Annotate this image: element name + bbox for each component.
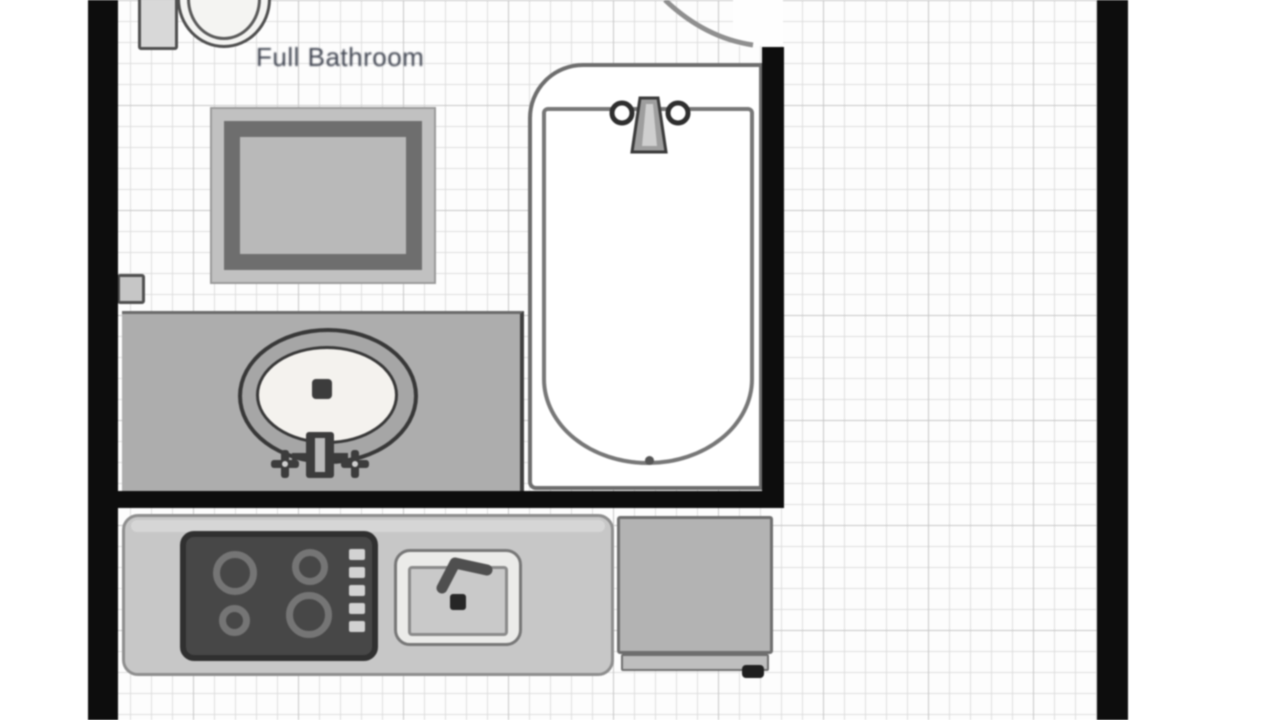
wall-fixture-icon [117,274,145,304]
faucet-left-handle-icon [271,450,299,478]
handle-center [282,461,288,467]
kitchen-sink-drain-icon [450,594,466,610]
vanity-faucet-spout [315,438,325,472]
floor-plan-canvas: Full Bathroom [0,0,1280,720]
appliance-foot [742,665,764,678]
handle-center [352,461,358,467]
kitchen-faucet-icon [425,550,495,600]
vanity-sink-drain-icon [312,379,332,399]
toilet-tank-icon [138,0,178,50]
dishwasher-icon [617,516,773,654]
cooktop-knob-icon [349,603,365,614]
bathtub-basin [542,107,754,465]
mirror-frame [224,121,422,270]
page-margin-right [1128,0,1280,720]
wall-mirror-icon [210,107,436,284]
room-label: Full Bathroom [256,42,424,73]
burner-top-right-icon [292,549,328,585]
burner-bottom-left-icon [219,605,250,636]
cooktop-knob-icon [349,621,365,632]
wall-far-right [1097,0,1128,720]
vanity-faucet-icon [306,432,334,478]
wall-left [88,0,118,720]
bathtub-drain-icon [645,456,654,465]
page-margin-left [0,0,88,720]
floor-plan: Full Bathroom [0,0,1280,720]
cooktop-knob-icon [349,585,365,596]
faucet-right-handle-icon [341,450,369,478]
wall-bottom [100,491,784,508]
burner-bottom-right-icon [286,592,332,638]
burner-top-left-icon [213,551,257,595]
bathtub-faucet-icon [600,90,700,160]
cooktop-knob-icon [349,549,365,560]
cooktop-knob-icon [349,567,365,578]
wall-right-bathroom [762,47,784,508]
